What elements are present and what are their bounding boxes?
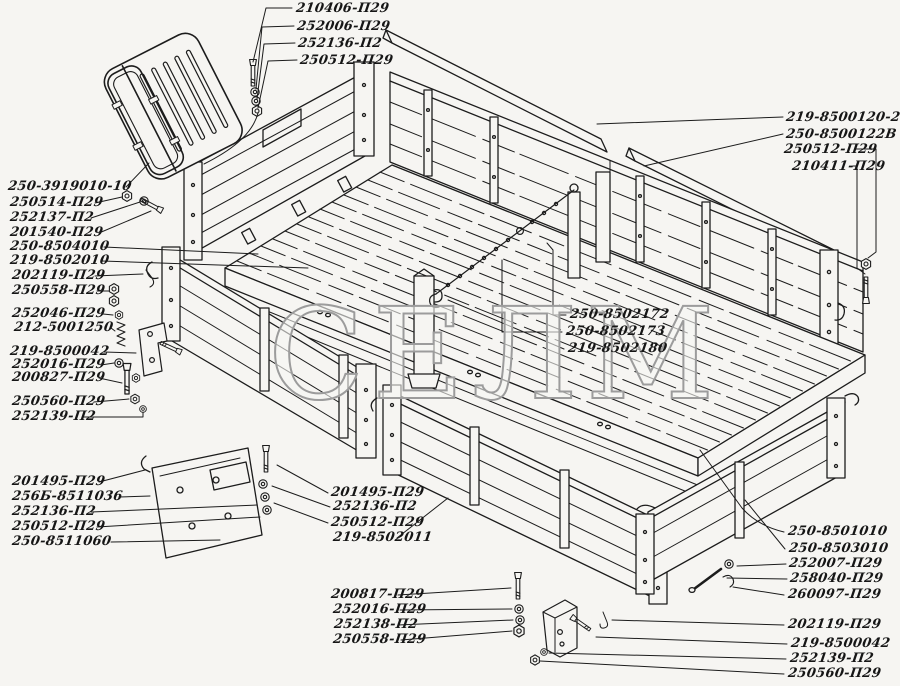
- part-label: 250558-П29: [11, 284, 106, 298]
- part-label: 201495-П29: [330, 486, 425, 500]
- part-label: 201540-П29: [9, 226, 104, 240]
- part-label: 250512-П29: [11, 520, 106, 534]
- part-label: 258040-П29: [789, 572, 884, 586]
- part-label: 250-8511060: [11, 535, 112, 549]
- part-label: 201495-П29: [11, 475, 106, 489]
- part-label: 202119-П29: [787, 618, 882, 632]
- cotter-pin: [600, 612, 608, 628]
- part-label: 250558-П29: [332, 633, 427, 647]
- part-label: 260097-П29: [787, 588, 882, 602]
- parts-catalog-page: СЕЛМ 210406-П29 252006-П29 252136-П2 250…: [0, 0, 900, 686]
- part-label: 219-8500042: [790, 637, 891, 651]
- part-label: 219-8502011: [332, 531, 433, 545]
- hook-bolt: [723, 575, 734, 587]
- part-label: 252016-П29: [332, 603, 427, 617]
- part-label: 250-8502172: [569, 308, 670, 322]
- part-label: 210406-П29: [295, 2, 390, 16]
- part-label: 250-8504010: [9, 240, 110, 254]
- part-label: 219-8502180: [567, 342, 668, 356]
- part-label: 256Б-8511036: [11, 490, 124, 504]
- part-label: 250-8503010: [788, 542, 889, 556]
- part-label: 250560-П29: [11, 395, 106, 409]
- tailgate-hook: [845, 394, 859, 405]
- part-label: 250-8500122В: [785, 128, 897, 142]
- part-label: 252139-П2: [11, 410, 97, 424]
- part-label: 250512-П29: [783, 143, 878, 157]
- part-label: 200817-П29: [330, 588, 425, 602]
- part-label: 250512-П29: [299, 54, 394, 68]
- part-label: 200827-П29: [11, 371, 106, 385]
- part-label: 252138-П2: [333, 618, 419, 632]
- part-label: 252137-П2: [9, 211, 95, 225]
- part-label: 219-8502010: [9, 254, 110, 268]
- tailgate-handle: [637, 505, 655, 509]
- part-label: 210411-П29: [791, 160, 886, 174]
- part-label: 252136-П2: [11, 505, 97, 519]
- part-label: 252139-П2: [789, 652, 875, 666]
- part-label: 252136-П2: [332, 500, 418, 514]
- part-label: 252006-П29: [296, 20, 391, 34]
- part-label: 250-8501010: [787, 525, 888, 539]
- latch-hook: [147, 262, 158, 279]
- part-label: 252046-П29: [11, 307, 106, 321]
- part-label: 202119-П29: [11, 269, 106, 283]
- part-label: 250-8502173: [565, 325, 666, 339]
- hinge-bracket-left: [139, 323, 167, 376]
- part-label: 250512-П29: [330, 516, 425, 530]
- part-label: 219-8500120-20: [785, 111, 900, 125]
- hinge-bracket-rear: [543, 600, 608, 657]
- part-label: 250560-П29: [787, 667, 882, 681]
- part-label: 252007-П29: [788, 557, 883, 571]
- clamp-hook: [141, 456, 150, 472]
- exploded-view-drawing: СЕЛМ: [0, 0, 900, 686]
- part-label: 212-5001250: [13, 321, 114, 335]
- part-label: 250514-П29: [9, 196, 104, 210]
- part-label: 250-3919010-10: [7, 180, 133, 194]
- part-label: 252136-П2: [297, 37, 383, 51]
- corner-post: [820, 250, 838, 350]
- rivet-rod: [694, 569, 721, 589]
